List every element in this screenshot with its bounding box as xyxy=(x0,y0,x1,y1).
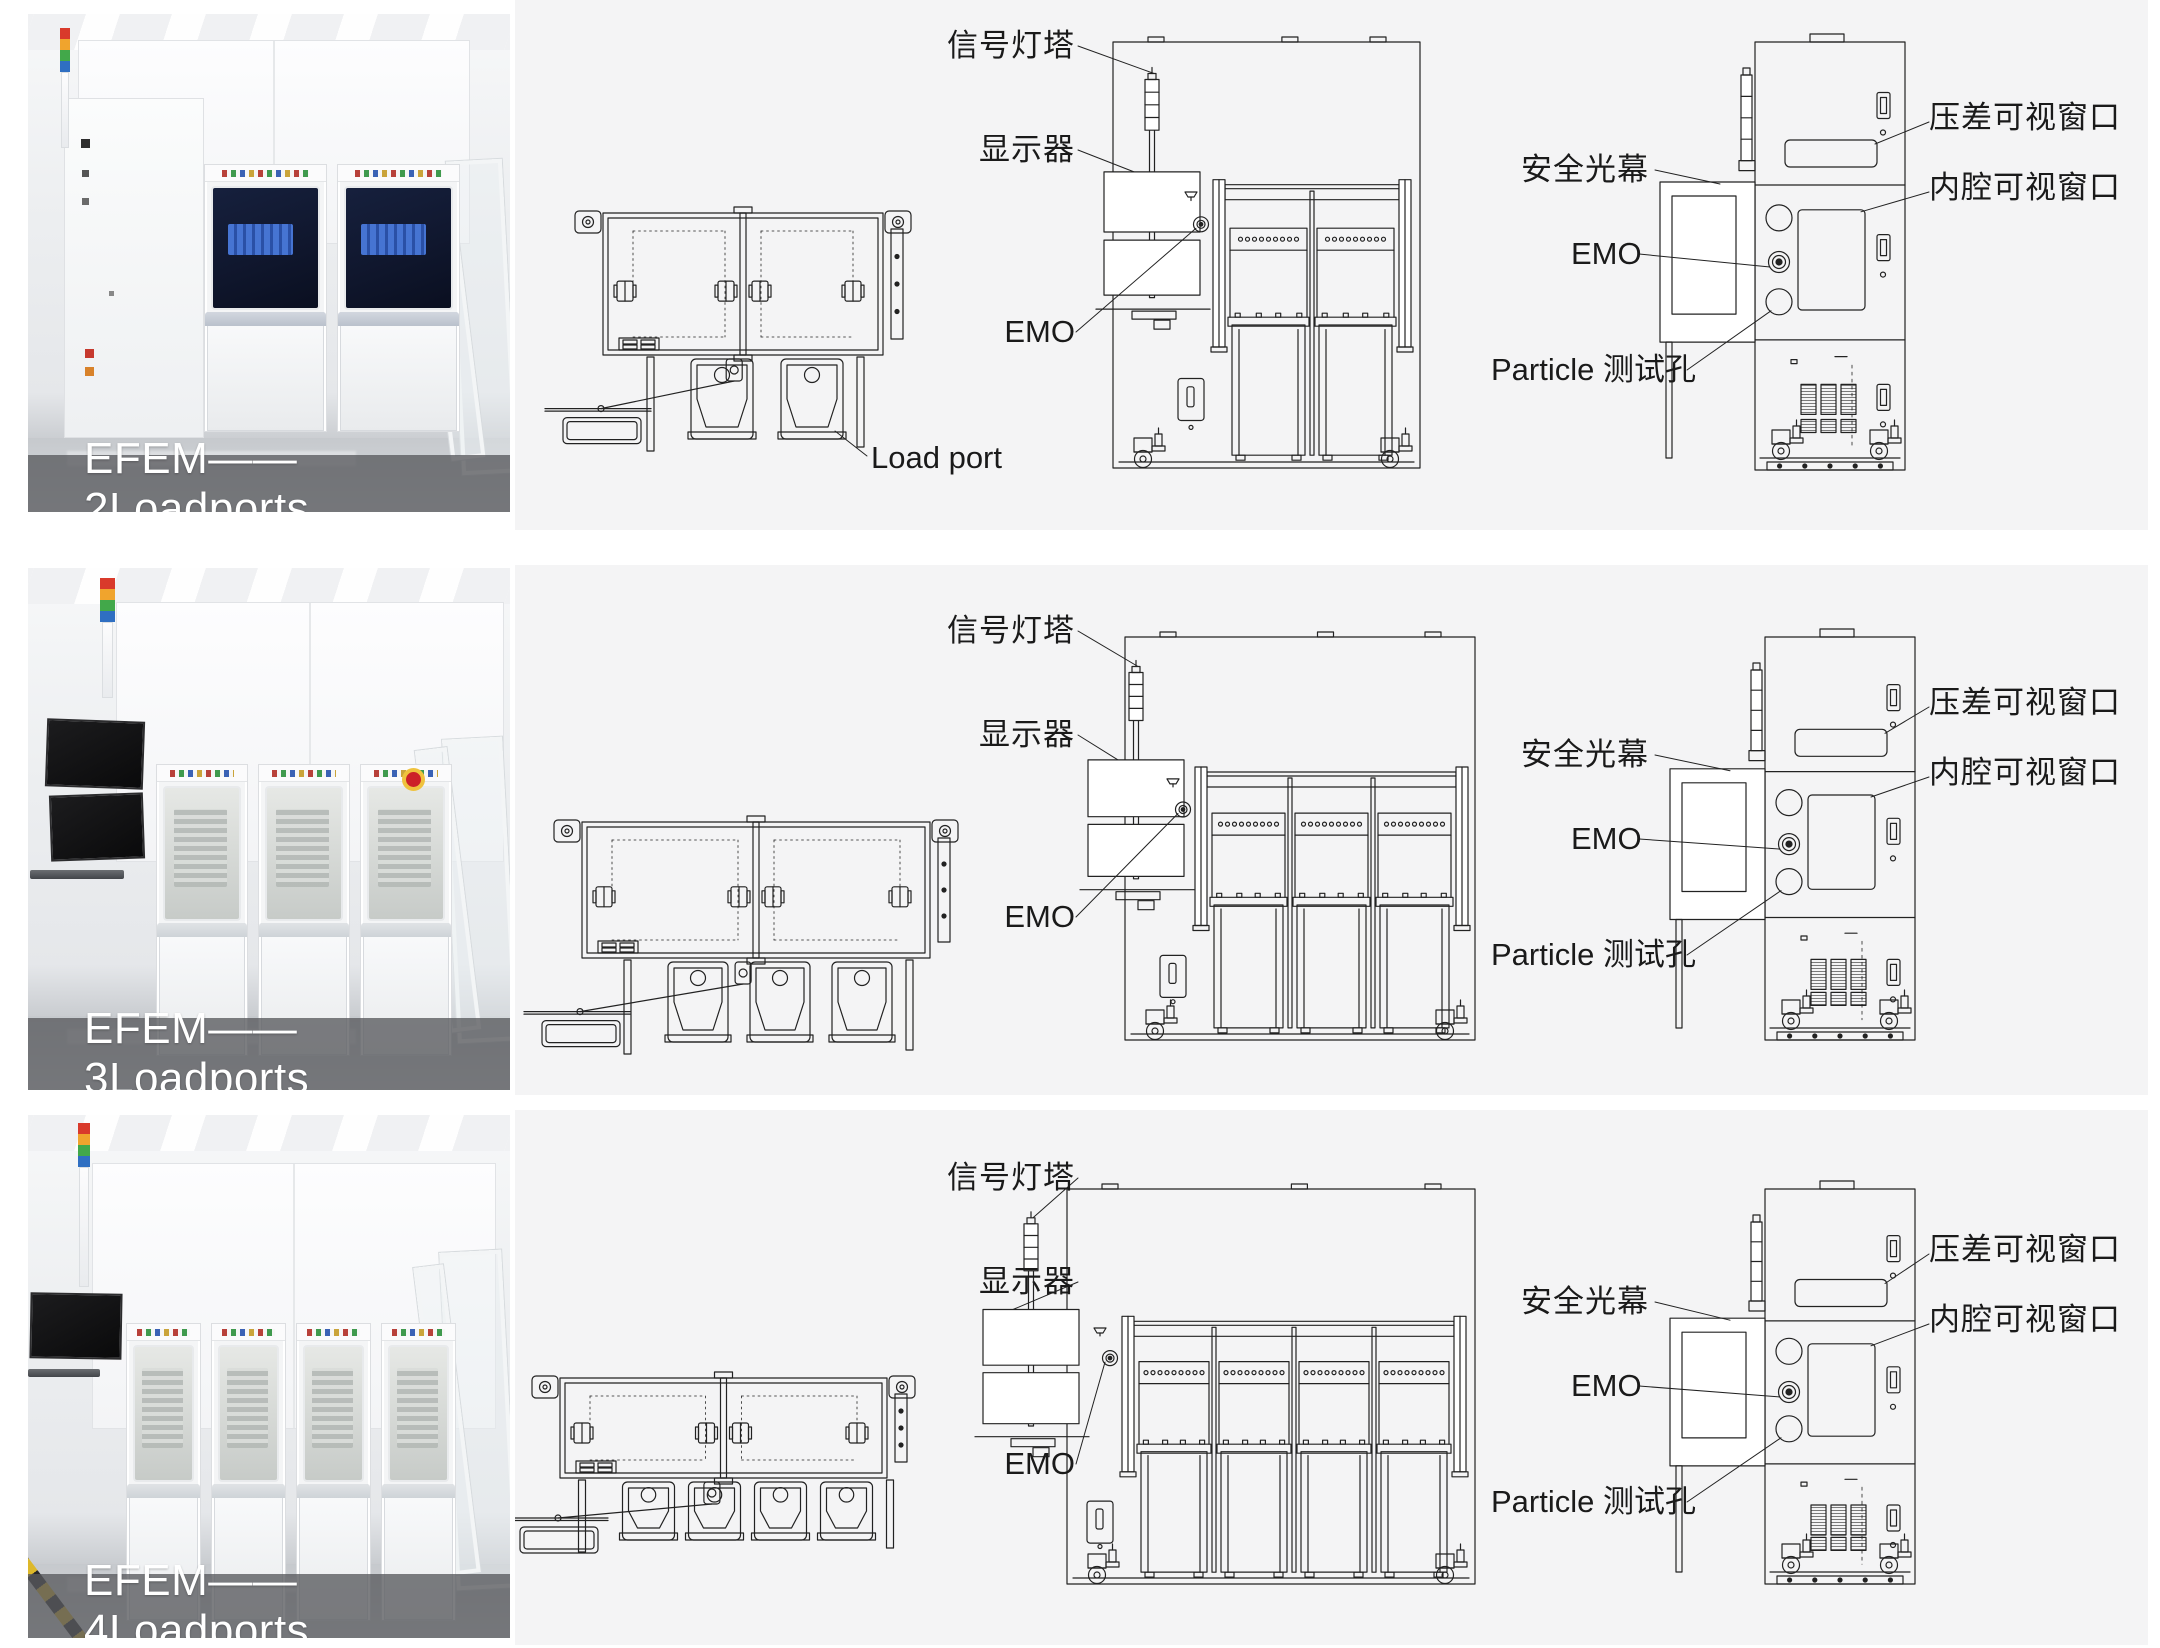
station-window xyxy=(265,786,343,921)
label-display: 显示器 xyxy=(875,1264,1075,1300)
photo-caption: EFEM——2Loadports xyxy=(28,455,510,512)
port-label-strip xyxy=(127,1324,200,1341)
label-safety-light-curtain: 安全光幕 xyxy=(1521,152,1649,188)
label-pressure-window: 压差可视窗口 xyxy=(1929,1232,2121,1268)
drawing-panel: 信号灯塔 显示器 EMO Load port 安全光幕 EMO Particle… xyxy=(515,0,2148,530)
label-emo-side: EMO xyxy=(1571,236,1642,272)
label-particle-test-hole: Particle 测试孔 xyxy=(1491,937,1696,973)
station-window xyxy=(163,786,241,921)
wafer-rack xyxy=(228,224,293,255)
row-efem-3loadports: EFEM——3Loadports 信号灯塔 显示器 EMO 安全光幕 EMO P… xyxy=(0,565,2160,1095)
station-window xyxy=(211,186,320,310)
label-signal-tower: 信号灯塔 xyxy=(815,1160,1075,1196)
port-label-strip xyxy=(259,765,349,782)
loadport-station xyxy=(337,164,460,432)
photo-caption: EFEM——3Loadports xyxy=(28,1018,510,1090)
label-cavity-window: 内腔可视窗口 xyxy=(1929,170,2121,206)
label-particle-test-hole: Particle 测试孔 xyxy=(1491,1484,1696,1520)
label-signal-tower: 信号灯塔 xyxy=(815,613,1075,649)
station-window xyxy=(388,1345,449,1482)
monitor-photo xyxy=(29,1292,122,1360)
signal-tower-photo xyxy=(60,28,70,148)
photo-caption: EFEM——4Loadports xyxy=(28,1574,510,1638)
row-efem-4loadports: EFEM——4Loadports 信号灯塔 显示器 EMO 安全光幕 EMO P… xyxy=(0,1110,2160,1645)
label-emo-front: EMO xyxy=(935,899,1075,935)
label-emo-front: EMO xyxy=(935,314,1075,350)
signal-tower-photo xyxy=(100,578,115,698)
port-label-strip xyxy=(382,1324,455,1341)
station-window xyxy=(303,1345,364,1482)
cleanroom-ceiling-lights xyxy=(28,1115,510,1151)
label-safety-light-curtain: 安全光幕 xyxy=(1521,737,1649,773)
technical-drawings xyxy=(515,1110,2148,1645)
wafer-rack xyxy=(142,1368,183,1448)
station-pedestal xyxy=(340,312,457,431)
port-label-strip xyxy=(297,1324,370,1341)
station-window xyxy=(367,786,445,921)
row-efem-2loadports: EFEM——2Loadports 信号灯塔 显示器 EMO Load port … xyxy=(0,0,2160,530)
station-window xyxy=(344,186,453,310)
wafer-rack xyxy=(312,1368,353,1448)
caption-text: EFEM——4Loadports xyxy=(84,1556,510,1638)
loadport-station xyxy=(204,164,327,432)
signal-tower-photo xyxy=(78,1123,90,1287)
technical-drawings xyxy=(515,0,2148,530)
keyboard-tray-photo xyxy=(30,870,124,879)
label-display: 显示器 xyxy=(875,132,1075,168)
wafer-rack xyxy=(174,809,227,887)
label-safety-light-curtain: 安全光幕 xyxy=(1521,1284,1649,1320)
technical-drawings xyxy=(515,565,2148,1095)
drawing-panel: 信号灯塔 显示器 EMO 安全光幕 EMO Particle 测试孔 压差可视窗… xyxy=(515,1110,2148,1645)
label-emo-side: EMO xyxy=(1571,821,1642,857)
label-emo-front: EMO xyxy=(935,1446,1075,1482)
port-label-strip xyxy=(338,165,459,182)
station-window xyxy=(218,1345,279,1482)
wafer-rack xyxy=(397,1368,438,1448)
label-emo-side: EMO xyxy=(1571,1368,1642,1404)
efem-photo-2loadports: EFEM——2Loadports xyxy=(28,14,510,512)
wafer-rack xyxy=(227,1368,268,1448)
efem-photo-4loadports: EFEM——4Loadports xyxy=(28,1115,510,1638)
label-particle-test-hole: Particle 测试孔 xyxy=(1491,352,1696,388)
label-pressure-window: 压差可视窗口 xyxy=(1929,100,2121,136)
wafer-rack xyxy=(276,809,329,887)
caption-text: EFEM——3Loadports xyxy=(84,1004,510,1090)
monitor-photo xyxy=(45,718,145,789)
emo-button-photo xyxy=(402,768,425,791)
label-cavity-window: 内腔可视窗口 xyxy=(1929,1302,2121,1338)
caption-text: EFEM——2Loadports xyxy=(84,434,510,513)
port-label-strip xyxy=(205,165,326,182)
label-signal-tower: 信号灯塔 xyxy=(815,28,1075,64)
port-label-strip xyxy=(157,765,247,782)
efem-side-cabinet xyxy=(64,98,204,438)
port-label-strip xyxy=(212,1324,285,1341)
efem-photo-3loadports: EFEM——3Loadports xyxy=(28,568,510,1090)
wafer-rack xyxy=(378,809,431,887)
station-window xyxy=(133,1345,194,1482)
label-load-port: Load port xyxy=(871,440,1002,476)
label-display: 显示器 xyxy=(875,717,1075,753)
keyboard-tray-photo xyxy=(28,1369,100,1377)
wafer-rack xyxy=(361,224,426,255)
loadport-stations xyxy=(204,164,460,432)
label-pressure-window: 压差可视窗口 xyxy=(1929,685,2121,721)
station-pedestal xyxy=(207,312,324,431)
monitor-photo xyxy=(49,792,145,861)
drawing-panel: 信号灯塔 显示器 EMO 安全光幕 EMO Particle 测试孔 压差可视窗… xyxy=(515,565,2148,1095)
page: EFEM——2Loadports 信号灯塔 显示器 EMO Load port … xyxy=(0,0,2160,1648)
label-cavity-window: 内腔可视窗口 xyxy=(1929,755,2121,791)
